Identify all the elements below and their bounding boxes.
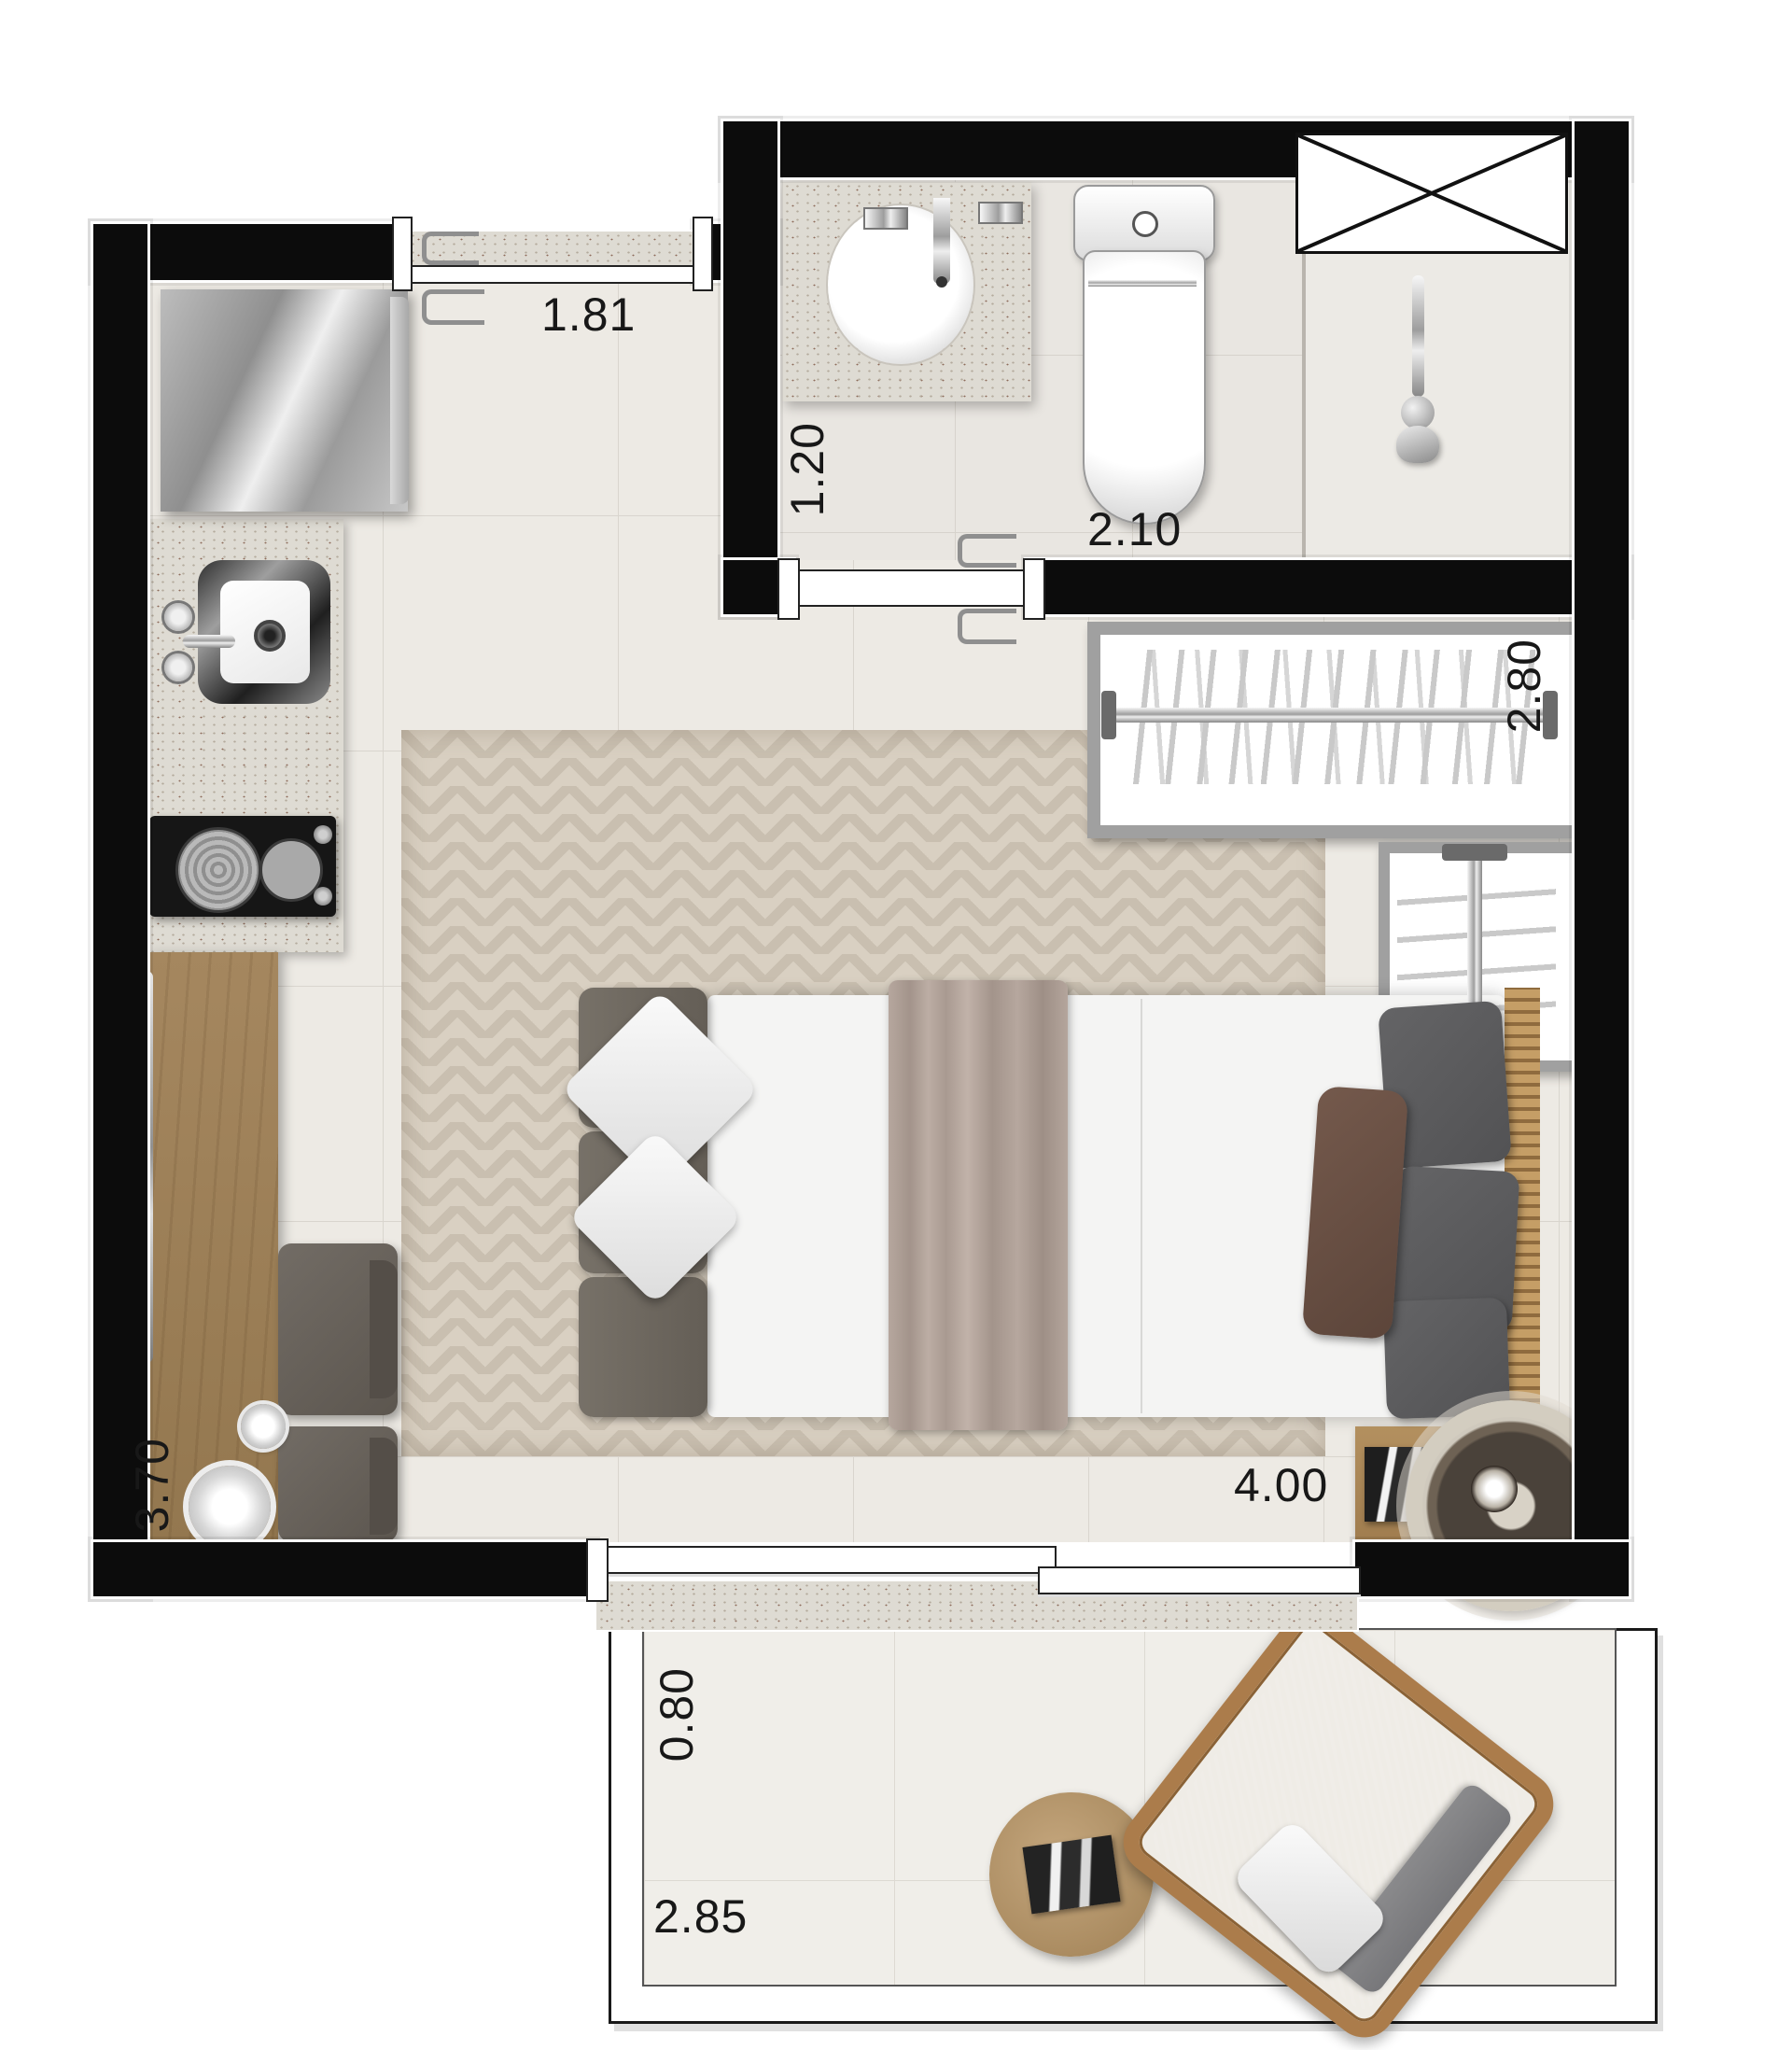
cooktop-knob-1	[314, 825, 332, 844]
dim-balcony-depth: 0.80	[653, 1667, 700, 1762]
cup-large	[189, 1466, 271, 1548]
dim-room-width: 4.00	[1234, 1462, 1328, 1509]
bathroom-door-handle-upper	[958, 534, 1016, 568]
bed-blanket	[889, 980, 1068, 1430]
secondary-rod-endcap	[1442, 844, 1507, 861]
bathroom-door-post-left	[777, 558, 800, 620]
bed-cushion-3	[1383, 1298, 1510, 1420]
cooktop-knob-2	[314, 887, 332, 906]
balcony-book	[1022, 1835, 1120, 1915]
stool-2-back	[370, 1438, 398, 1535]
shower-head	[1396, 426, 1439, 463]
floor-plan-page: { "dimensions": { "window_top": "1.81", …	[0, 0, 1792, 2027]
kitchen-sink-drain	[254, 620, 286, 652]
bed-sheet-fold-2	[1141, 999, 1142, 1413]
bathroom-faucet-handle-left	[863, 207, 908, 230]
bathroom-wall-bottom-right	[1027, 560, 1629, 614]
balcony-door-panel-left	[605, 1546, 1057, 1574]
kitchen-faucet-spout	[183, 635, 235, 648]
refrigerator	[161, 289, 408, 512]
toilet-bowl	[1083, 250, 1206, 525]
toilet-flush-button	[1132, 211, 1158, 237]
bathroom-window	[1295, 133, 1568, 254]
bathroom-faucet-spout	[933, 198, 950, 284]
toilet-seat-hinge	[1088, 280, 1197, 287]
bathroom-door-post-right	[1023, 558, 1045, 620]
dim-bath-depth: 1.20	[784, 422, 831, 516]
bed-headboard-segment-3	[579, 1277, 707, 1417]
kitchen-faucet-handle-cold	[164, 653, 192, 681]
decor-tray-center	[1471, 1466, 1518, 1512]
kitchen-faucet-handle-hot	[164, 603, 192, 631]
bathroom-faucet-handle-right	[978, 202, 1023, 224]
closet-rod-endcap-left	[1101, 691, 1116, 739]
wall-left	[93, 224, 147, 1596]
top-window-frame	[406, 265, 699, 284]
wall-right	[1575, 121, 1629, 1596]
window-cross-icon	[1298, 135, 1565, 251]
dim-window-top: 1.81	[541, 291, 636, 338]
refrigerator-side-panel	[390, 297, 409, 504]
wall-bottom-left	[93, 1542, 595, 1596]
shower-diverter	[1401, 396, 1435, 429]
bathroom-wall-left	[723, 121, 777, 614]
wall-bottom-right	[1355, 1542, 1629, 1596]
dim-bath-width: 2.10	[1087, 506, 1182, 553]
top-window-post-right	[693, 217, 713, 291]
bathroom-faucet-tip	[936, 276, 947, 288]
dim-room-depth: 3.70	[129, 1438, 175, 1532]
cup-small	[241, 1404, 286, 1449]
top-window-post-left	[392, 217, 413, 291]
bathroom-door-handle-lower	[958, 609, 1016, 644]
balcony-door-panel-right	[1038, 1566, 1361, 1594]
closet-rod	[1111, 708, 1551, 723]
balcony-door-post	[586, 1538, 609, 1602]
window-handle-upper	[422, 232, 479, 265]
dim-closet-width: 2.80	[1501, 639, 1547, 733]
cooktop-burner-large	[175, 827, 261, 913]
dim-balcony-width: 2.85	[653, 1893, 748, 1940]
window-handle-lower	[422, 289, 484, 325]
shower-column	[1412, 275, 1424, 397]
bathroom-door-leaf	[791, 569, 1034, 607]
stool-1-back	[370, 1260, 398, 1398]
bed-pillow-brown	[1302, 1086, 1408, 1340]
